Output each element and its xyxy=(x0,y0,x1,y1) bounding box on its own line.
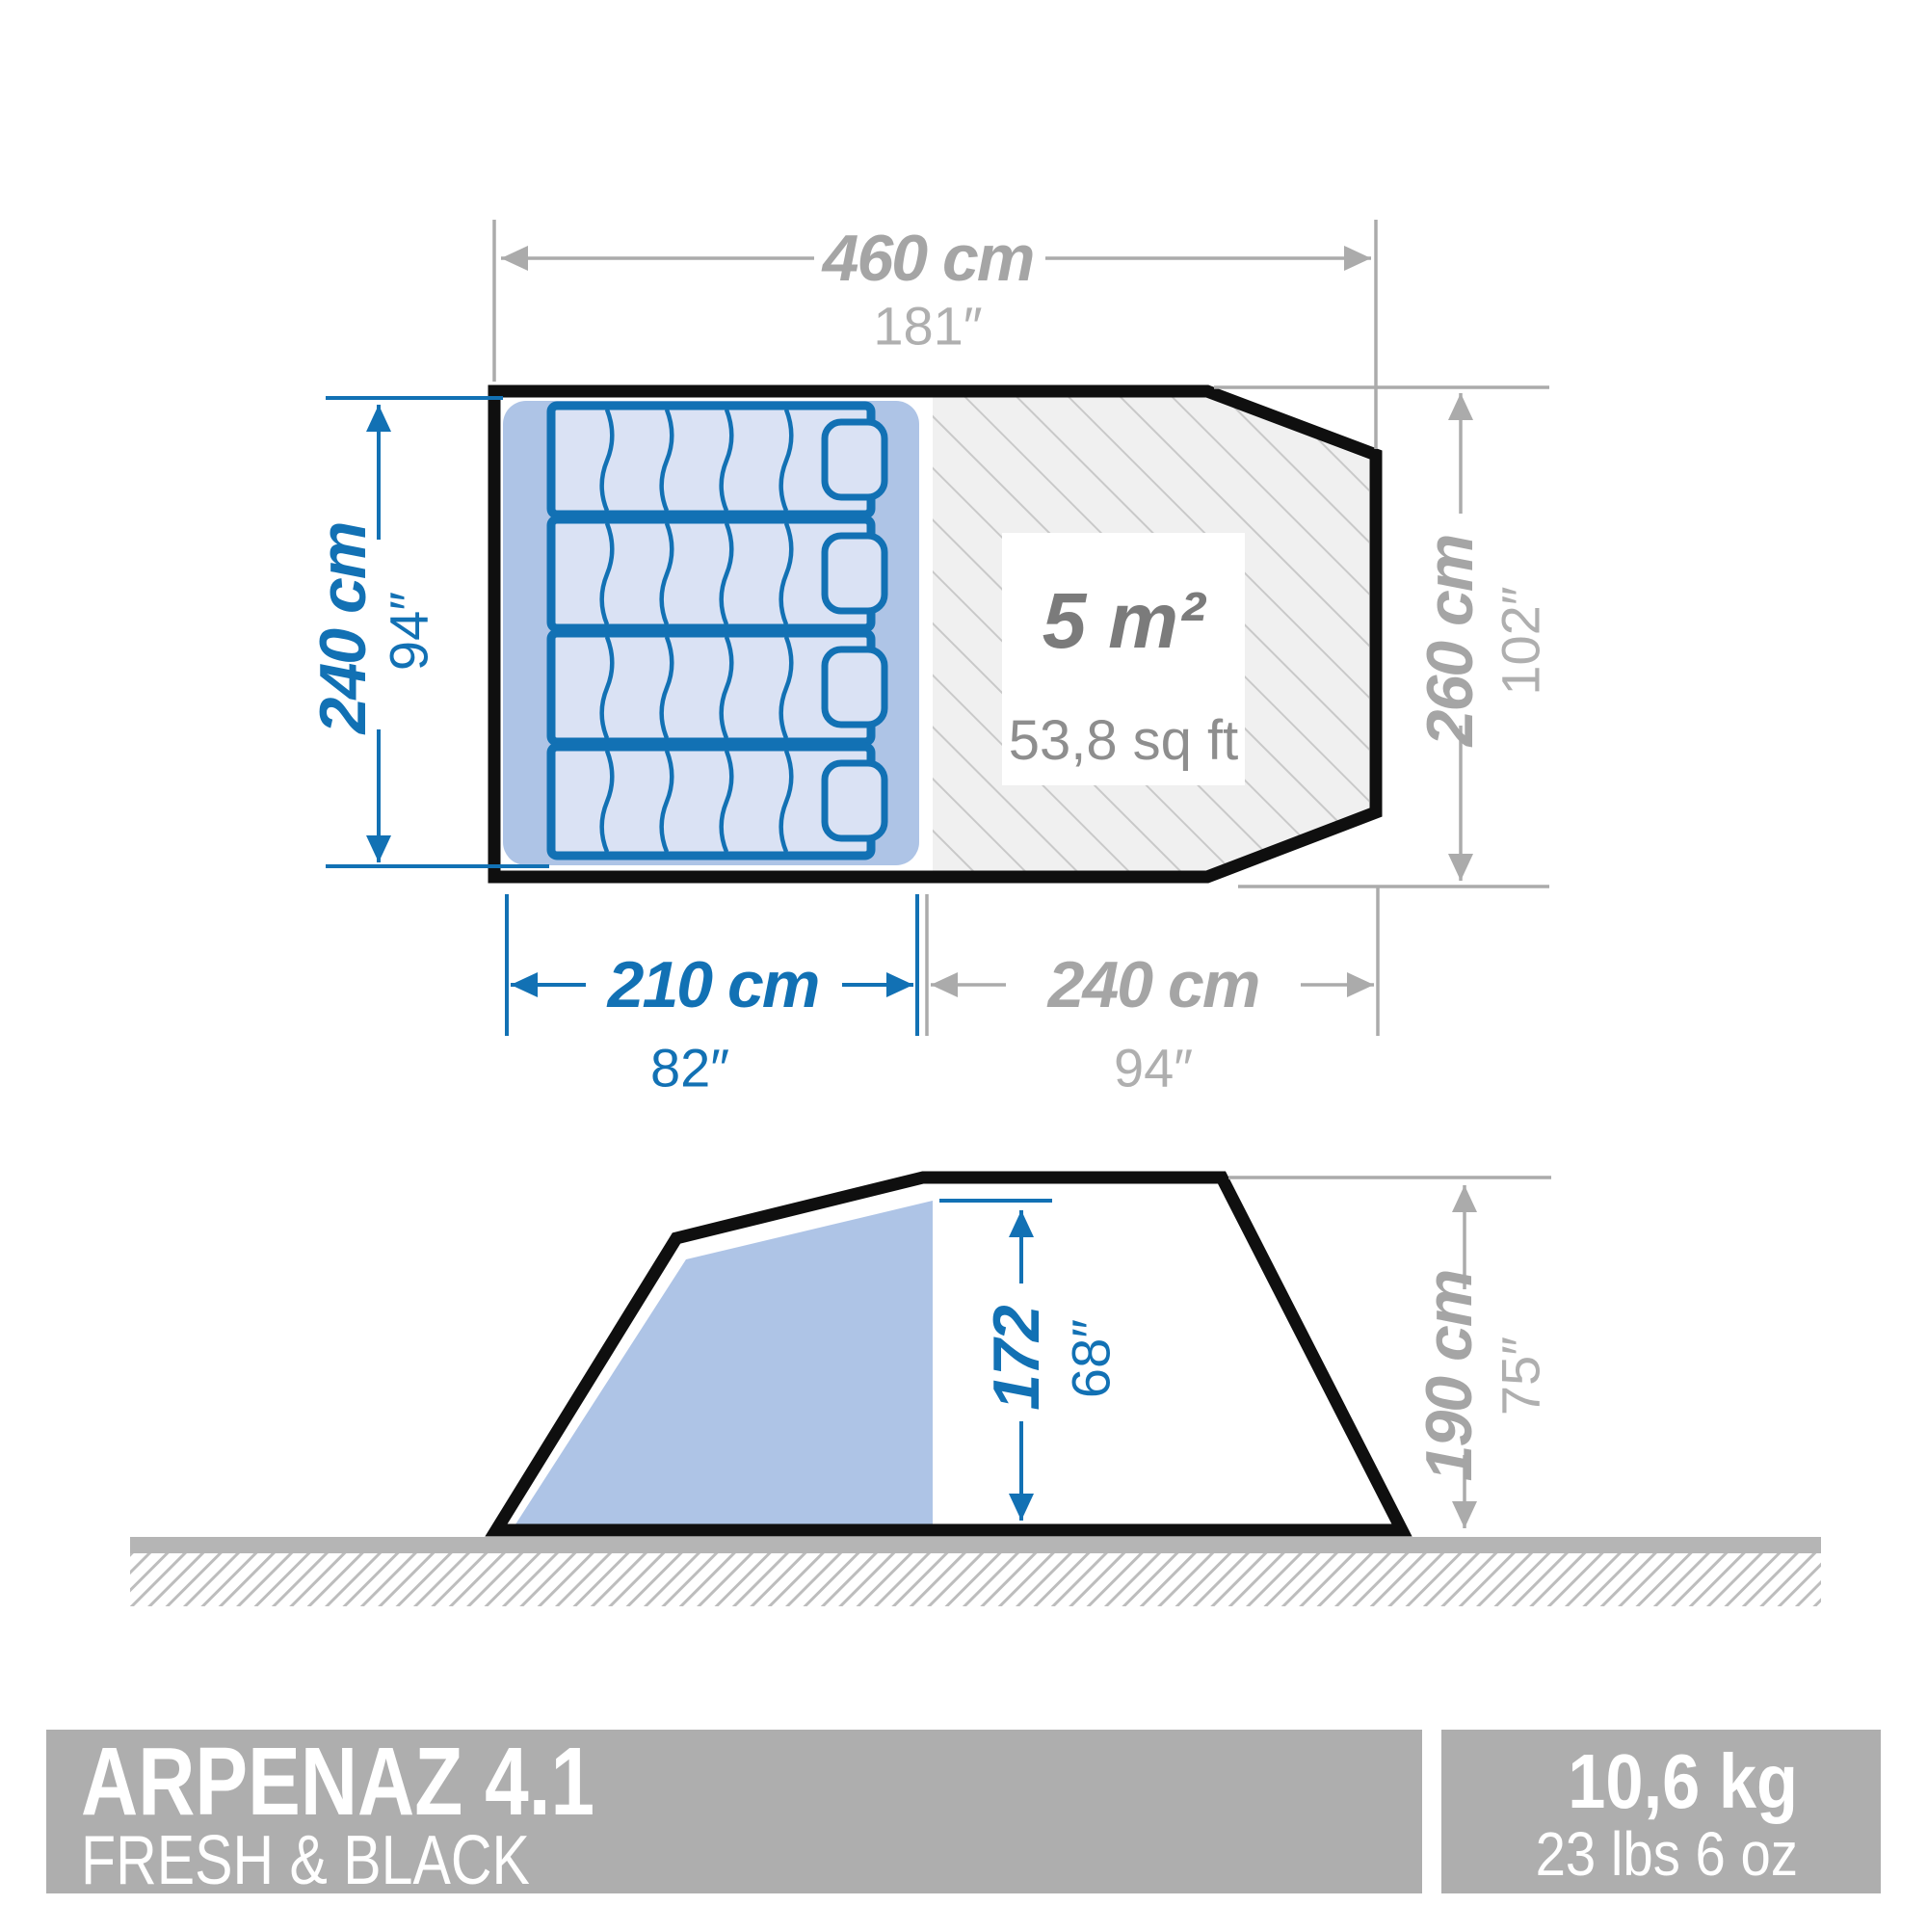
product-edition: FRESH & BLACK xyxy=(81,1826,1180,1893)
mattress xyxy=(551,406,884,515)
total-depth-cm-label: 260 cm xyxy=(1413,536,1487,749)
pillow xyxy=(825,422,884,497)
ground-hatch xyxy=(130,1553,1821,1606)
weight-imperial: 23 lbs 6 oz xyxy=(1484,1820,1798,1888)
mattress xyxy=(551,519,884,628)
bedroom-height-cm-label: 172 xyxy=(980,1305,1053,1411)
pillow xyxy=(825,536,884,611)
living-length-in-label: 94″ xyxy=(1114,1038,1193,1098)
total-length-in-label: 181″ xyxy=(873,296,982,357)
bedroom-depth-cm-label: 240 cm xyxy=(306,523,380,736)
bedroom-length-cm-label: 210 cm xyxy=(606,948,819,1021)
tent-dimensions-diagram: 5 m² 53,8 sq ft 460 cm 181″ 240 cm 94″ xyxy=(0,0,1927,1927)
weight-banner: 10,6 kg 23 lbs 6 oz xyxy=(1441,1730,1881,1893)
mattress xyxy=(551,633,884,742)
bedroom-depth-in-label: 94″ xyxy=(379,592,439,671)
ground-line xyxy=(130,1537,1821,1553)
living-area-m2-label: 5 m² xyxy=(1043,577,1207,665)
weight-metric: 10,6 kg xyxy=(1484,1743,1798,1820)
pillow xyxy=(825,763,884,838)
mattress xyxy=(551,747,884,856)
side-bedroom-area xyxy=(515,1201,933,1524)
bedroom-height-in-label: 68″ xyxy=(1061,1319,1122,1398)
side-view: 172 68″ 190 cm 75″ xyxy=(130,1178,1821,1606)
mattress-group xyxy=(551,406,884,856)
living-area-sqft-label: 53,8 sq ft xyxy=(1009,709,1239,772)
living-length-cm-label: 240 cm xyxy=(1046,948,1259,1021)
pillow xyxy=(825,649,884,725)
total-height-cm-label: 190 cm xyxy=(1412,1271,1486,1482)
total-height-in-label: 75″ xyxy=(1491,1337,1551,1416)
product-banner: ARPENAZ 4.1 FRESH & BLACK xyxy=(46,1730,1422,1893)
total-length-cm-label: 460 cm xyxy=(821,222,1034,295)
top-view: 5 m² 53,8 sq ft 460 cm 181″ 240 cm 94″ xyxy=(306,220,1551,1098)
total-depth-in-label: 102″ xyxy=(1491,586,1551,695)
bedroom-length-in-label: 82″ xyxy=(650,1038,729,1098)
product-name: ARPENAZ 4.1 xyxy=(81,1737,1180,1826)
